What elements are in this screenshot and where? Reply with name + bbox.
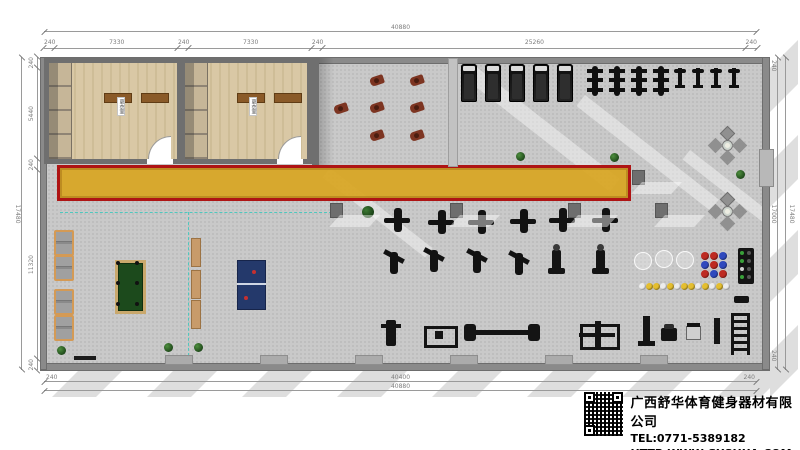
gym-bike: [696, 68, 700, 88]
ball: [719, 261, 727, 269]
ball: [702, 283, 709, 290]
treadmill: [461, 64, 477, 102]
shadow-stripe: [770, 230, 798, 302]
partition-light: [448, 58, 458, 167]
elliptical: [614, 66, 620, 96]
post-a: [643, 316, 650, 344]
sofa: [54, 289, 74, 315]
ball: [723, 283, 730, 290]
gym-bike: [714, 68, 718, 88]
small-eq: [734, 296, 749, 303]
treadmill: [533, 64, 549, 102]
elliptical: [636, 66, 642, 96]
bench-press: [386, 320, 396, 346]
dim-line-right-outer: 17480: [785, 57, 786, 370]
machine-b: [381, 250, 407, 276]
ball: [701, 252, 709, 260]
shadow-stripe: [242, 371, 312, 397]
dim-segment: 240: [27, 359, 37, 370]
ball: [719, 270, 727, 278]
title-block: 广西舒华体育健身器材有限公司 TEL:0771-5389182 HTTP:WWW…: [584, 392, 800, 450]
zone-line-vertical: [188, 212, 189, 361]
elliptical: [658, 66, 664, 96]
changing-room-1: 更衣室: [44, 58, 182, 164]
sofa: [54, 230, 74, 256]
plant: [194, 343, 203, 352]
dim-line-bottom-inner: 40400 240 240: [44, 381, 757, 382]
qr-code: [584, 392, 623, 436]
ball: [719, 252, 727, 260]
dim-left-total: 17480: [14, 204, 21, 223]
pilaster: [450, 355, 478, 365]
elliptical: [592, 66, 598, 96]
company-info: 广西舒华体育健身器材有限公司 TEL:0771-5389182 HTTP:WWW…: [630, 392, 800, 450]
treadmill: [485, 64, 501, 102]
plant: [610, 153, 619, 162]
qr-finder-icon: [584, 425, 595, 436]
plant: [164, 343, 173, 352]
partition-wall-shadow: [319, 58, 334, 165]
dim-bottom-right-end: 240: [744, 374, 755, 381]
ball: [660, 283, 667, 290]
ball: [701, 270, 709, 278]
post-b: [714, 318, 720, 344]
ball: [653, 283, 660, 290]
dim-segment: 11320: [27, 170, 37, 358]
ball: [674, 283, 681, 290]
ball: [681, 283, 688, 290]
wood-bench: [191, 270, 201, 299]
dim-segment: 25260: [323, 38, 745, 48]
dim-bottom-left-end: 240: [46, 374, 57, 381]
shadow-stripe: [432, 371, 502, 397]
partition-wall: [312, 58, 319, 165]
col: [632, 170, 645, 185]
ghost-ball: [655, 250, 673, 268]
shadow-stripe: [770, 135, 798, 207]
locker-row: [185, 63, 208, 159]
right-wall-door: [759, 149, 774, 187]
plant: [516, 152, 525, 161]
col: [450, 203, 463, 218]
machine-b: [506, 251, 532, 277]
dim-bottom-inner: 40400: [391, 374, 410, 381]
sofa: [54, 255, 74, 281]
ball: [701, 261, 709, 269]
dim-line-bottom-total: 40880: [44, 390, 757, 391]
zone-line-horizontal: [60, 212, 332, 213]
ball: [667, 283, 674, 290]
qr-finder-icon: [584, 392, 595, 403]
db-rack: [738, 248, 754, 284]
pilaster: [165, 355, 193, 365]
company-tel: TEL:0771-5389182: [630, 432, 800, 445]
dim-segment: 240: [746, 38, 757, 48]
col: [655, 203, 668, 218]
plate-rack: [424, 326, 458, 348]
billiard: [115, 260, 146, 314]
door-swing-arc: [148, 136, 171, 159]
dim-right-top-end: 240: [770, 60, 777, 71]
qr-finder-icon: [612, 392, 623, 403]
ball: [688, 283, 695, 290]
shadow-stripe: [52, 371, 122, 397]
machine-b: [464, 249, 490, 275]
plant: [57, 346, 66, 355]
wood-bench: [191, 300, 201, 329]
company-name: 广西舒华体育健身器材有限公司: [630, 392, 800, 430]
changing-room-2: 更衣室: [180, 58, 312, 164]
ladder-rack: [731, 313, 750, 355]
dim-top-total: 40880: [391, 24, 410, 31]
locker-row: [49, 63, 72, 159]
dim-right-bottom-end: 240: [770, 350, 777, 361]
locker-bench: [141, 93, 169, 103]
col: [568, 203, 581, 218]
pilaster: [640, 355, 668, 365]
dim-right-inner: 17000: [770, 204, 777, 223]
wall-right: [762, 57, 770, 370]
dim-line-left-segments: 240544024011320240: [27, 57, 38, 370]
room-label: 更衣室: [117, 97, 125, 116]
ball: [710, 270, 718, 278]
room-label: 更衣室: [249, 97, 257, 116]
floor-plan-canvas: 更衣室 更衣室 40880 2407330240733024025260240 …: [0, 0, 800, 450]
ball: [709, 283, 716, 290]
ghost-ball: [634, 252, 652, 270]
pilaster: [260, 355, 288, 365]
machine-b: [421, 248, 447, 274]
leisure: [710, 194, 744, 228]
doormat: [74, 356, 96, 360]
locker-bench: [274, 93, 302, 103]
ghost-ball: [676, 251, 694, 269]
gym-bike: [678, 68, 682, 88]
sofa: [54, 315, 74, 341]
squat-rack: [580, 324, 620, 350]
dim-bottom-total: 40880: [391, 383, 410, 390]
dim-segment: 5440: [27, 68, 37, 158]
leisure: [710, 128, 744, 162]
pedestal: [552, 250, 561, 272]
chair-eq: [686, 326, 701, 340]
curl-bench: [661, 328, 677, 341]
machine-a: [384, 208, 410, 232]
shadow-stripe: [770, 40, 798, 112]
machine-a: [510, 209, 536, 233]
dim-line-left-total: 17480: [21, 57, 22, 370]
ball: [639, 283, 646, 290]
barbell-bench: [470, 330, 534, 335]
door-swing-arc: [278, 136, 301, 159]
pedestal: [596, 250, 605, 272]
highlighted-track-zone: [57, 165, 631, 201]
dim-right-outer: 17480: [788, 204, 795, 223]
ball: [710, 252, 718, 260]
shadow-stripe: [147, 371, 217, 397]
gym-bike: [732, 68, 736, 88]
ball: [695, 283, 702, 290]
dim-segment: 7330: [55, 38, 178, 48]
pilaster: [355, 355, 383, 365]
wood-bench: [191, 238, 201, 267]
col: [330, 203, 343, 218]
pilaster: [545, 355, 573, 365]
treadmill: [509, 64, 525, 102]
dim-segment: 7330: [189, 38, 312, 48]
dim-line-top-total: 40880: [44, 31, 757, 32]
pingpong: [237, 260, 266, 310]
dim-line-right-inner: 17000: [777, 57, 778, 370]
door-opening: [277, 159, 303, 164]
plant: [736, 170, 745, 179]
ball: [710, 261, 718, 269]
ball: [716, 283, 723, 290]
door-opening: [147, 159, 173, 164]
treadmill: [557, 64, 573, 102]
ball: [646, 283, 653, 290]
dim-line-top-segments: 2407330240733024025260240: [44, 38, 757, 49]
